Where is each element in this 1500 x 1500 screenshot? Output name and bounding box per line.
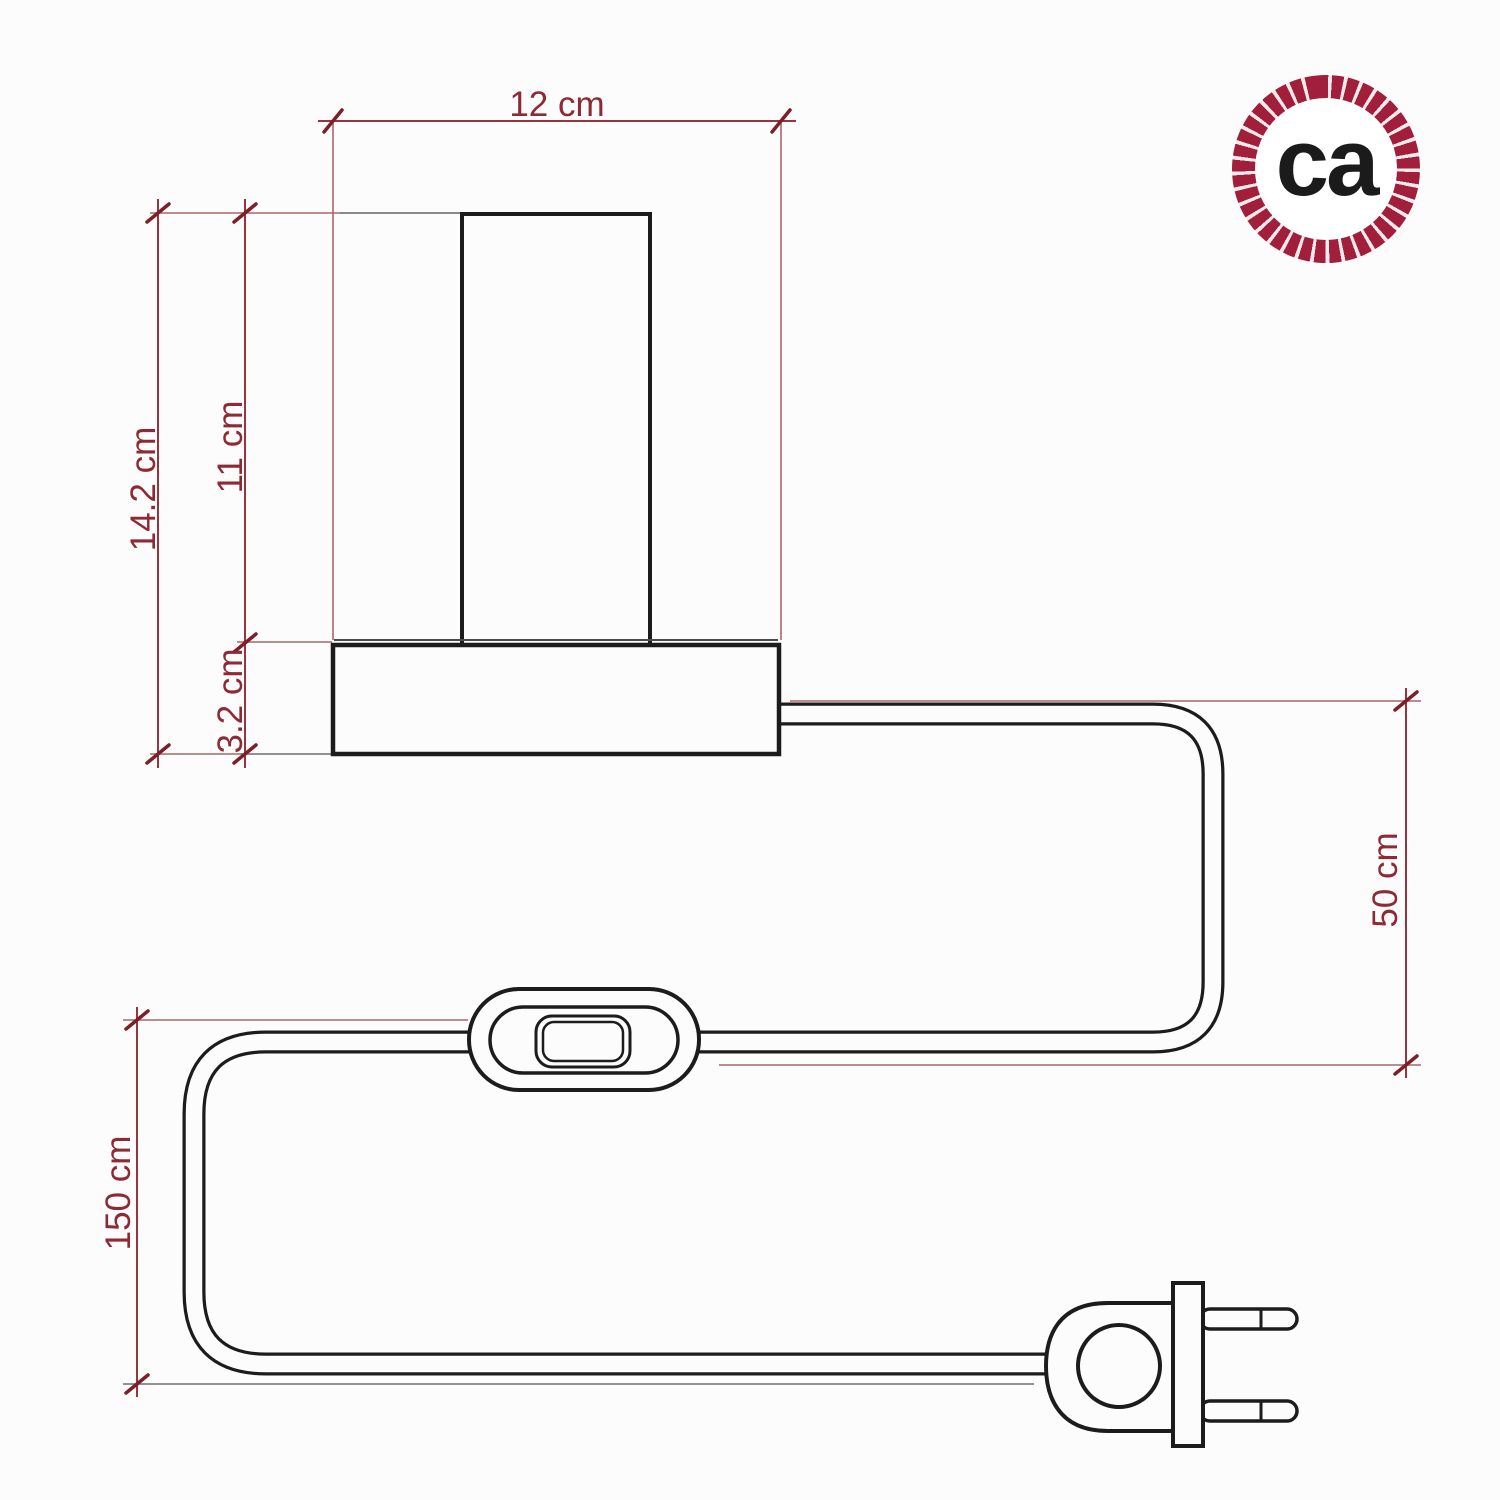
logo-inner-circle: ca [1255, 98, 1397, 240]
cable-core [194, 714, 1213, 1364]
lamp-shade [462, 214, 650, 646]
logo-text: ca [1276, 115, 1377, 211]
plug-pin-bottom [1200, 1401, 1297, 1421]
power-plug [1046, 1283, 1297, 1446]
brand-logo: ca [1232, 75, 1420, 263]
plug-pin-top [1200, 1309, 1297, 1329]
dimension-label-total-height: 14.2 cm [124, 427, 163, 552]
dimension-label-base-width: 12 cm [509, 85, 604, 124]
dimension-label-base-height: 3.2 cm [211, 648, 250, 753]
dimension-label-shade-height: 11 cm [211, 401, 250, 494]
dimension-label-cable-length: 150 cm [99, 1136, 138, 1251]
lamp-base [333, 645, 779, 754]
rope-ring-icon: ca [1232, 75, 1420, 263]
inline-switch [469, 989, 699, 1090]
dimension-label-cable-drop: 50 cm [1366, 832, 1405, 927]
technical-drawing-page: 12 cm 14.2 cm 11 cm 3.2 cm 50 cm 150 cm [0, 0, 1500, 1500]
plug-grip-circle [1078, 1325, 1160, 1407]
power-cable [194, 714, 1213, 1364]
plug-face-plate [1173, 1283, 1203, 1446]
